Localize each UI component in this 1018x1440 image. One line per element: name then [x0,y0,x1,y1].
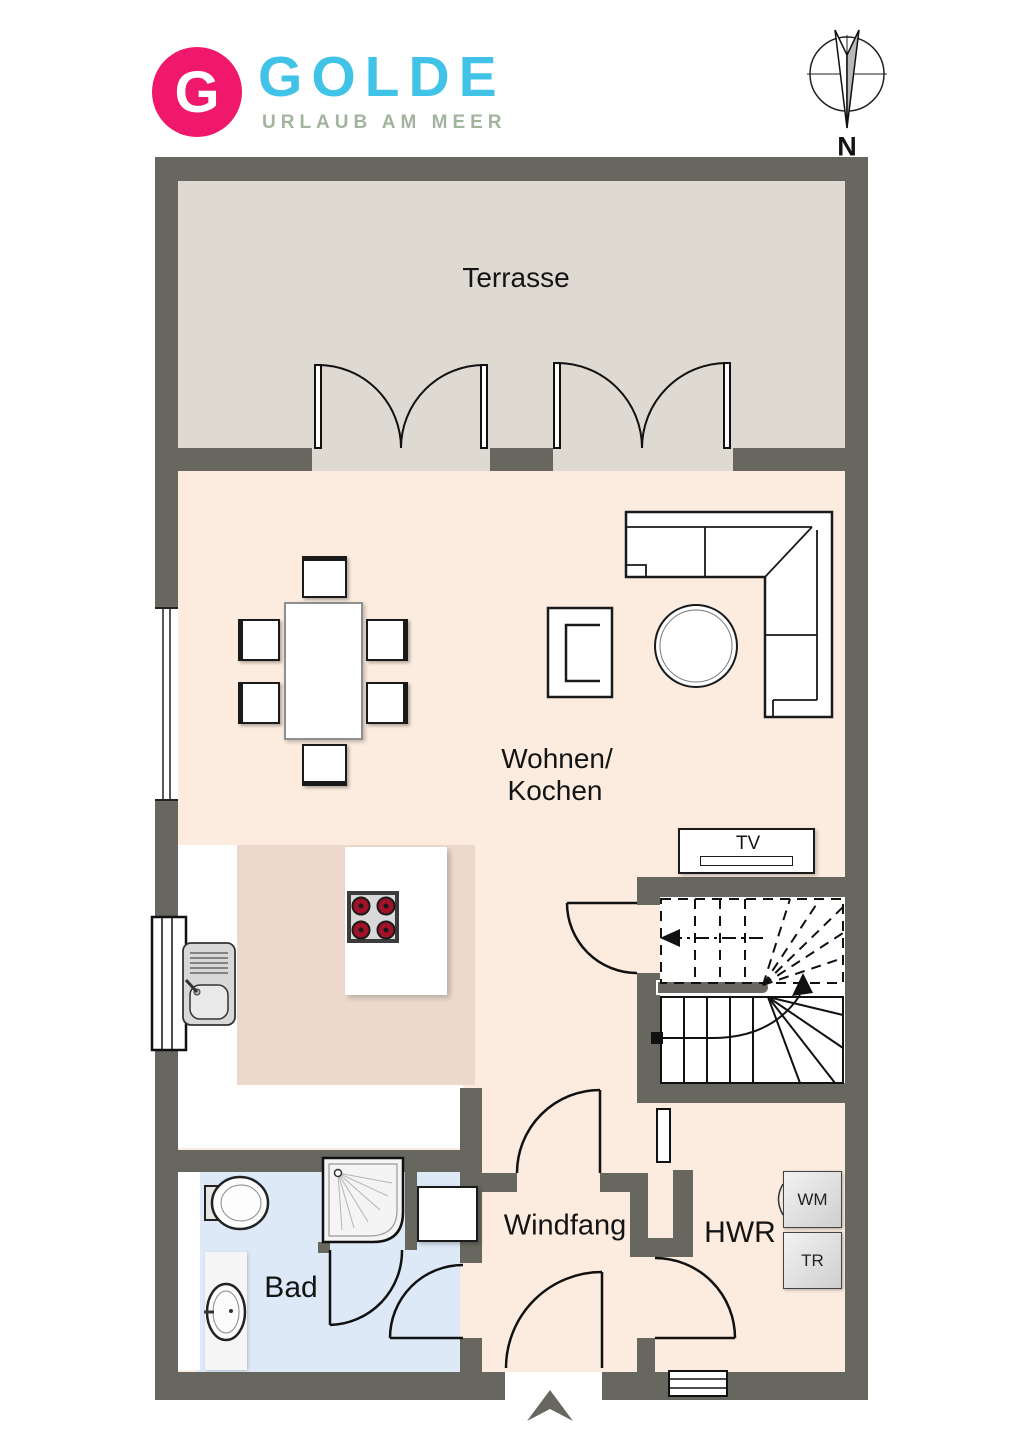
tv-label: TV [736,833,760,855]
stair-upper-flight [661,899,843,985]
utility-grate-slats [670,1379,726,1388]
corner-sofa [626,512,832,717]
kitchen-sink [183,943,235,1025]
wash-basin [204,1284,245,1340]
toilet [205,1177,268,1229]
stair-door [567,903,637,973]
shower [323,1158,403,1242]
stair-upper-walkline [660,929,763,947]
bath-label: Bad [264,1271,317,1305]
entrance-arrow-icon [527,1390,573,1421]
bath-door [390,1265,463,1338]
terrace-french-door-left [315,365,487,448]
kitchen-window [152,917,186,1050]
living-label-line2: Kochen [508,775,603,807]
living-window-glazing [155,608,178,800]
terrace-french-door-right [554,363,730,448]
living-vestibule-door [517,1090,600,1173]
shower-door [330,1250,402,1325]
armchair [548,608,612,697]
floor-plan: G GOLDE URLAUB AM MEER [0,0,1018,1440]
entry-door [506,1272,602,1368]
washing-machine-door-arc [779,1184,784,1215]
vestibule-label: Windfang [504,1210,627,1243]
utility-door [655,1258,735,1338]
round-table [655,605,737,687]
compass-icon [807,30,887,128]
stair-lower-flight [661,997,843,1083]
terrace-label: Terrasse [462,262,569,294]
compass-north-label: N [837,132,857,163]
living-label-line1: Wohnen/ [501,743,613,775]
cooktop [347,891,399,943]
utility-label: HWR [704,1216,776,1250]
